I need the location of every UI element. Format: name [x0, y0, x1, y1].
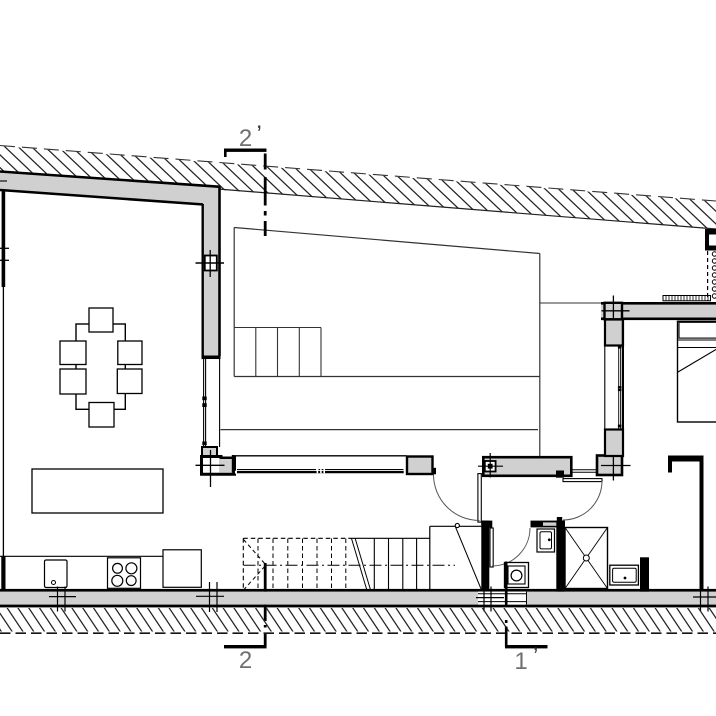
svg-text:’: ’: [533, 643, 538, 670]
svg-text:1: 1: [514, 648, 527, 675]
svg-text:2: 2: [239, 125, 252, 152]
svg-text:’: ’: [257, 121, 262, 148]
svg-text:2: 2: [239, 647, 252, 674]
